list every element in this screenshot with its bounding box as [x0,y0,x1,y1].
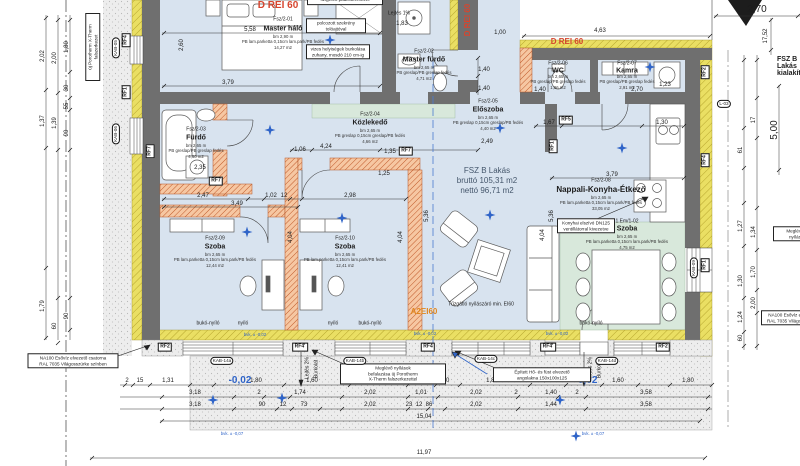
dim-label: 2,00 [52,52,58,64]
window-type-label: bukó-nyíló [579,321,602,326]
floor-plan-drawing: D REI 60 D REI 60 D REI 60 A2EI60 Tűzgát… [0,0,800,466]
dim-label: 12 [280,402,287,408]
dim-label: 2,02 [40,50,46,62]
dim-label: 30 [64,85,70,92]
dim-label: 1,39 [52,117,58,129]
dim-label: 4,04 [540,229,546,241]
dim-label: 1,25 [378,171,390,177]
dim-label: 12 [416,402,423,408]
dim-label: 90 [64,313,70,320]
window-type-label: nyíló [238,321,249,326]
level-note: bvk. ± -0,07 [221,432,243,437]
dim-label: 5,58 [244,27,256,33]
dim-label: 4,24 [320,144,332,150]
room-info-szoba2: bm 2,65 m PB lam.parketta 0,15cm lam.par… [304,252,386,268]
shower-icon [398,2,430,34]
room-code-master-halo: Fsz/2-01 [273,17,292,22]
room-info-nappali: bm 2,65 m PB lam.parketta 0,15cm lam.par… [560,195,642,211]
note-esoviz-right: NA100 Esővíz elvezető RAL 7035 Világossz… [761,310,800,325]
paving-label: Burkolat [314,360,319,378]
dim-label: 2 [575,390,578,396]
tag-kab09: KAB-09 [690,258,698,279]
dim-label: 1,70 [751,266,757,278]
dim-label: 86 [426,402,433,408]
dim-label: 3,49 [231,201,243,207]
room-info-szoba3: bm 2,65 m PB lam.parketta 0,15cm lam.par… [586,234,668,250]
dim-label: 5,36 [424,210,430,222]
room-code-kozlekedo: Fsz/2-04 [360,112,379,117]
room-name-master-furdo: Master fürdő [403,56,445,63]
tag-rf5: RF5 [559,116,573,125]
tag-rf2: RF2 [158,343,172,352]
dim-label: 1,24 [738,311,744,323]
tag-rf1: RF1 [549,139,558,153]
dim-label: 1,40 [545,390,557,396]
dim-label: 1,02 [265,193,277,199]
apartment-gross-area: bruttó 105,31 m2 [457,177,517,185]
dim-label: 2,00 [751,297,757,309]
slope-label: Lejtés 2% [305,357,310,379]
tag-rf7: RF7 [146,144,155,158]
room-code-furdo: Fsz/2-03 [186,127,205,132]
tag-l03: L-03 [717,100,731,108]
room-name-szoba3: Szoba [617,225,638,232]
dim-label: 1,30 [656,120,668,126]
note-konyhai-elszivo: Konyhai elszívó DN125 ventillátorral kiv… [557,218,615,233]
dim-label: 2,70 [747,5,766,16]
dim-label: 1,00 [494,30,506,36]
dim-label: 73 [301,402,308,408]
tag-rf2: RF2 [656,343,670,352]
dim-label: 1,06 [294,147,306,153]
dim-label: 3,58 [640,402,652,408]
room-info-master-furdo: bm 2,65 m PB greslap/PB greslap fedés 4,… [397,65,452,81]
fire-rating-label: D REI 60 [258,1,299,12]
note-esoviz: NA100 Esővíz elvezető csatorna RAL 7035 … [28,353,119,368]
room-name-nappali: Nappali-Konyha-Étkező [556,186,645,194]
dim-label: 1,60 [612,378,624,384]
room-code-szoba3: 1.Em/1-02 [615,219,638,224]
note-angolakna: Épített Hő- és füst elvezető angolakna 1… [493,367,591,382]
dim-label: 1,74 [294,390,306,396]
dim-label: 1,40 [478,67,490,73]
dim-label: 2,98 [344,193,356,199]
room-info-szoba1: bm 2,65 m PB lam.parketta 0,15cm lam.par… [174,252,256,268]
dim-label: 1,60 [306,378,318,384]
dim-label: 1,80 [682,378,694,384]
room-info-eloszoba: bm 2,65 m PB greslap 0,15cm greslap/PB f… [453,115,523,131]
dim-label: 2 [125,378,128,384]
dim-label: 4,63 [594,28,606,34]
tag-rf4: RF4 [701,153,710,167]
dim-label: 1,67 [543,120,555,126]
window-type-label: bukó-nyíló [196,321,219,326]
level-note: bvk. ± -0,02 [414,332,436,337]
tag-kab14d: KAB-14d [595,357,618,365]
note-vizes-burkolas: vizes helyiségek burkolása zuhany, mosdó… [306,44,370,59]
dim-label: 2,60 [179,39,185,51]
dim-label: 1,40 [478,86,490,92]
room-name-furdo: Fürdő [186,134,206,141]
dim-label: 90 [259,402,266,408]
dim-label: 1,35 [384,149,396,155]
dim-label: 1,40 [534,87,546,93]
tag-rf4-prime: RF4' [292,343,308,352]
fire-rating-label: D REI 60 [464,4,472,36]
dim-label: 2,02 [364,390,376,396]
dim-label: 2,02 [470,402,482,408]
dim-label: 2 [257,390,260,396]
dim-label: 12 [281,193,288,199]
dim-label: 5,36 [549,210,555,222]
dim-label: 3,58 [640,390,652,396]
room-name-szoba2: Szoba [335,243,356,250]
dim-label: 2 [514,390,517,396]
room-name-master-halo: Master háló [264,25,303,32]
dim-label: 55 [64,103,70,110]
dim-label: 2,49 [481,139,493,145]
level-note: bvk. ± -0,02 [546,332,568,337]
dim-label: 60 [52,323,58,330]
dim-label: 1,27 [738,220,744,232]
tag-rf2: RF2 [701,65,710,79]
note-meglevo-nyilas: Meglévő nyílás [773,226,800,241]
dim-label: 1,31 [162,378,174,384]
tag-rf4: RF4 [421,343,435,352]
dim-label: 2,02 [470,390,482,396]
note-szekreny: polcozott szekrény tolóajtóval [306,18,366,33]
dim-label: 17,52 [763,28,769,43]
level-note: bvk. ± -0,02 [244,333,266,338]
dim-label: 2,02 [364,402,376,408]
tag-kab14b: KAB-14b [343,357,366,365]
dim-label: 61 [738,147,744,154]
dim-label: 60 [738,335,744,342]
apartment-net-area: nettó 96,71 m2 [460,187,513,195]
apartment-name: FSZ B Lakás [464,167,510,175]
dim-label: 1,44 [545,402,557,408]
dim-label: 1,23 [659,82,671,88]
dim-label: 3,18 [189,402,201,408]
room-info-kozlekedo: bm 2,65 m PB greslap 0,15cm greslap/PB f… [335,128,405,144]
dim-label: 1,30 [738,275,744,287]
room-code-szoba1: Fsz/2-09 [205,236,224,241]
dim-label: 1,80 [64,41,70,53]
dim-label: 23 [406,402,413,408]
tag-rf1: RF1 [701,258,710,272]
fire-door-note: Tűzgátló nyílászáró min. EI60 [448,302,514,307]
dim-label: 1,34 [751,226,757,238]
room-code-eloszoba: Fsz/2-05 [478,99,497,104]
note-befalazas: Meglévő nyílások befalazása új Porotherm… [340,363,446,384]
tag-kab14c: KAB-14c [474,355,497,363]
tag-kab06: KAB-06 [112,124,120,145]
tag-rf4-prime: RF4' [540,343,556,352]
dim-label: 2,47 [197,193,209,199]
room-code-nappali: Fsz/2-08 [591,178,610,183]
fire-rating-label: D REI 60 [551,38,583,46]
tag-kab14a: KAB-14a [210,357,233,365]
dim-label: 15,04 [416,414,431,420]
note-padloszerkezet: szigetelt padlószerkezet [307,0,383,5]
dim-label: 11,97 [417,450,432,456]
dim-label: 1,80 [250,378,262,384]
window-type-label: bukó-nyíló [358,321,381,326]
dim-label: 1,83 [396,21,408,27]
tag-rf1: RF1 [122,85,131,99]
tag-rf7: RF7 [399,147,413,156]
room-name-szoba1: Szoba [205,243,226,250]
dim-label: 1,79 [40,300,46,312]
dim-label: 15 [137,378,144,384]
dim-label: 2,35 [194,165,206,171]
window-type-label: nyíló [328,321,339,326]
dim-label: 3,18 [189,390,201,396]
dim-label: 5,00 [770,120,781,139]
level-note: bvk. ± -0,07 [582,432,604,437]
fire-rating-label: A2EI60 [411,308,438,316]
dim-label: 17 [751,117,757,124]
dim-label: 3,79 [222,80,234,86]
level-marker: -0,02 [229,376,252,387]
dim-label: 90 [64,130,70,137]
room-info-kamra: bm 2,65 m PB greslap/PB greslap fedés 2,… [600,74,655,90]
tag-kab05: KAB-05 [112,38,120,59]
room-info-furdo: bm 2,65 m PB greslap/PB greslap fedés 4,… [169,143,224,159]
room-code-master-furdo: Fsz/2-02 [414,49,433,54]
dim-label: 1,37 [40,115,46,127]
dim-label: 4,04 [288,231,294,243]
dim-label: 4,04 [398,231,404,243]
tag-rf7: RF7 [209,177,223,186]
room-code-kamra: Fsz/2-07 [617,61,636,66]
room-name-kozlekedo: Közlekedő [352,119,387,126]
room-code-wc: Fsz/2-06 [548,61,567,66]
note-porotherm: új Porotherm X-Therm falszerkezet [85,13,100,81]
drawing-edge-title: FSZ B Lakás kialakítása [777,56,800,77]
tag-rf4: RF4 [122,33,131,47]
room-name-eloszoba: Előszoba [473,106,504,113]
dim-label: 1,01 [415,390,427,396]
slope-label: Lejtés 1% [388,11,410,16]
room-code-szoba2: Fsz/2-10 [335,236,354,241]
dim-label: 3,79 [606,172,618,178]
dim-label: 2,70 [631,87,643,93]
